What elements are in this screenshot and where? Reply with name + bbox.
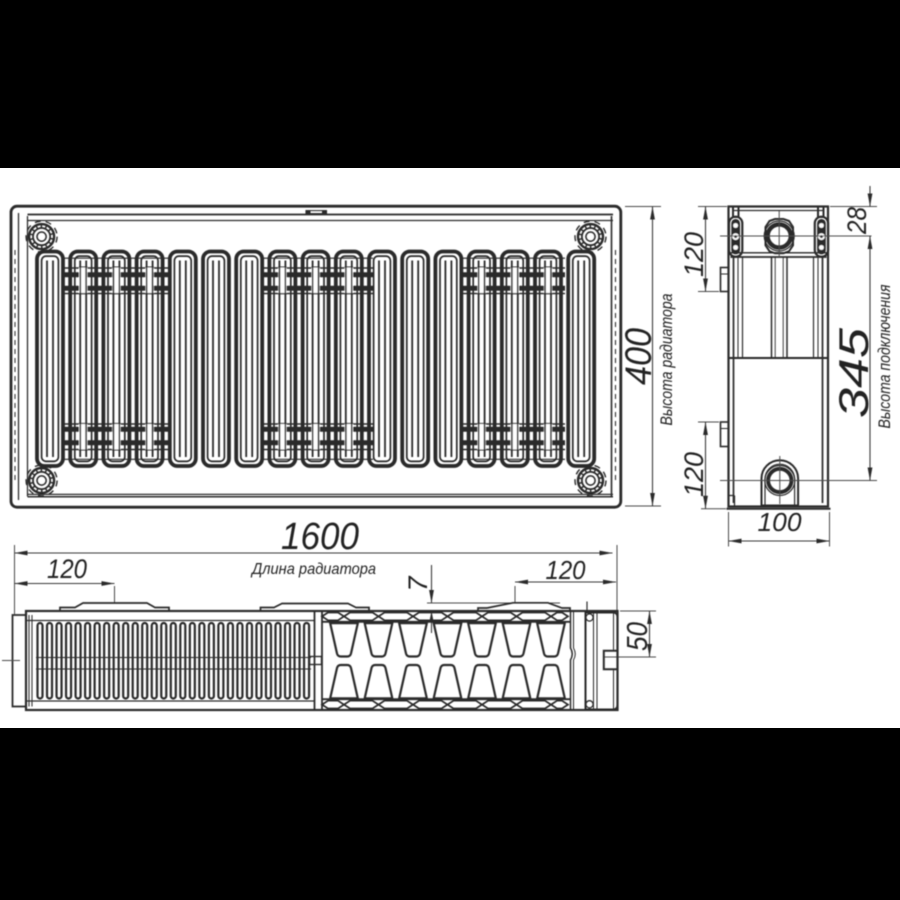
svg-text:345: 345 [830, 327, 877, 418]
svg-text:120: 120 [679, 452, 709, 497]
svg-text:Высота подключения: Высота подключения [875, 285, 894, 429]
svg-text:120: 120 [679, 232, 709, 277]
svg-text:50: 50 [622, 622, 654, 651]
svg-text:120: 120 [47, 554, 87, 584]
svg-text:120: 120 [546, 555, 586, 585]
svg-text:Высота радиатора: Высота радиатора [657, 294, 676, 426]
svg-text:100: 100 [758, 507, 803, 537]
svg-text:1600: 1600 [281, 516, 359, 558]
svg-text:Длина радиатора: Длина радиатора [250, 561, 376, 578]
svg-text:7: 7 [403, 576, 433, 592]
svg-text:28: 28 [842, 207, 872, 235]
svg-text:400: 400 [618, 328, 659, 385]
